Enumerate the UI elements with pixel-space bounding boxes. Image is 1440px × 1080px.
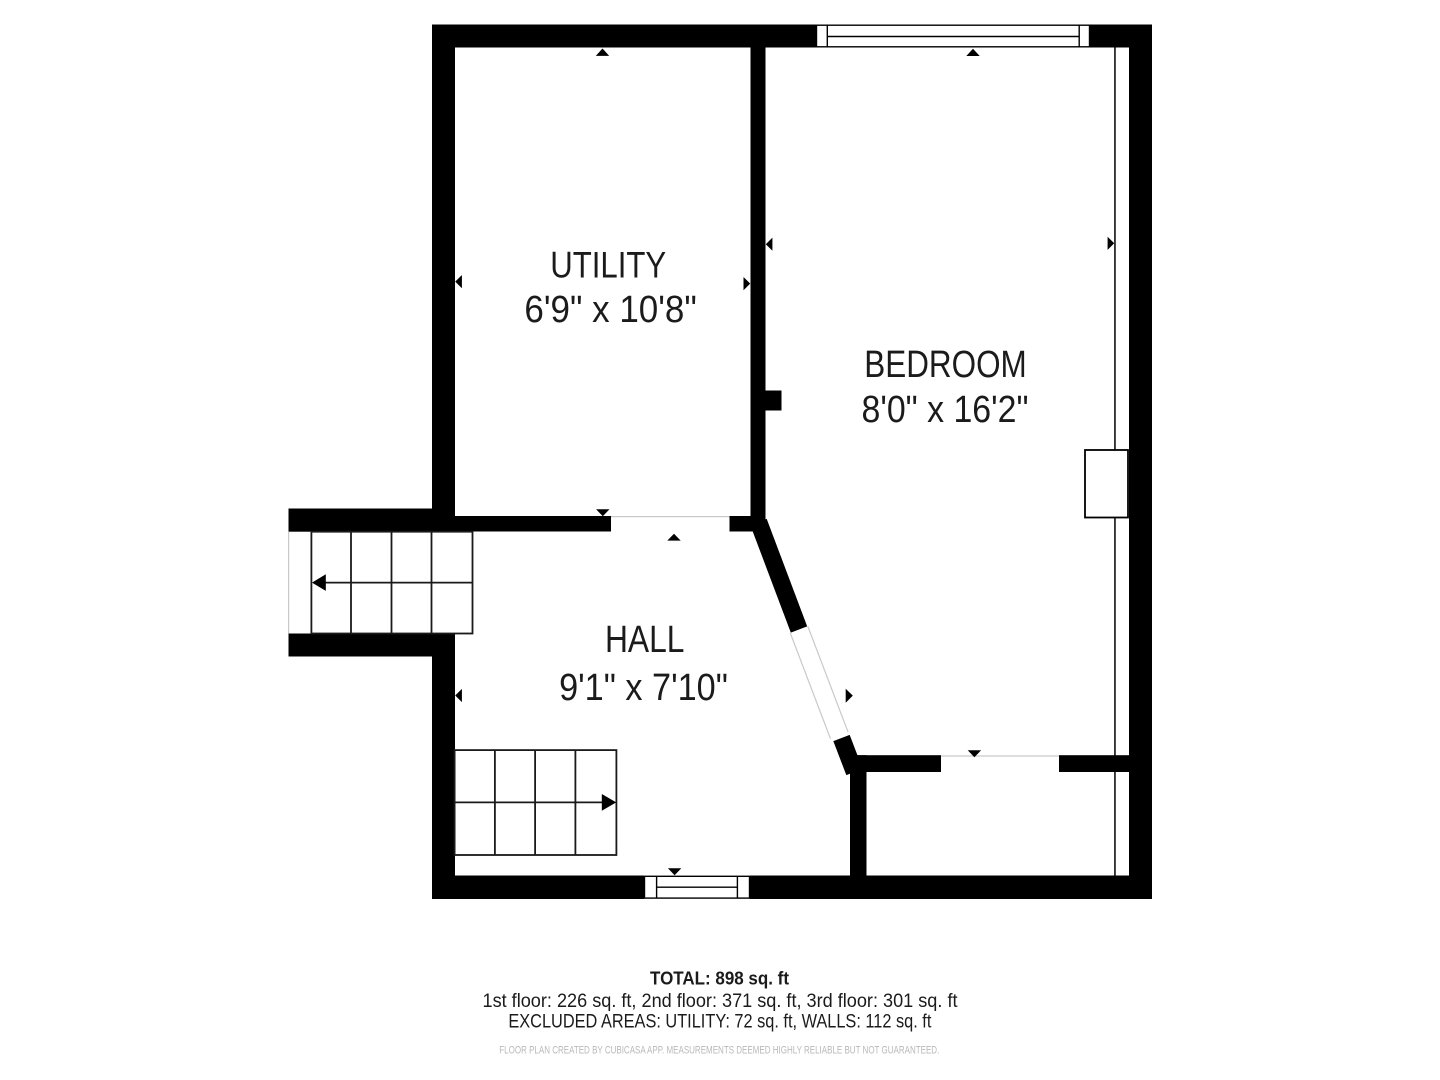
svg-text:6'9" x 10'8": 6'9" x 10'8"	[524, 289, 696, 331]
svg-text:TOTAL: 898 sq. ft: TOTAL: 898 sq. ft	[650, 969, 789, 989]
svg-text:EXCLUDED AREAS: UTILITY: 72 sq: EXCLUDED AREAS: UTILITY: 72 sq. ft, WALL…	[508, 1011, 932, 1032]
svg-text:8'0" x 16'2": 8'0" x 16'2"	[862, 389, 1029, 431]
svg-text:9'1" x 7'10": 9'1" x 7'10"	[559, 667, 728, 709]
svg-text:BEDROOM: BEDROOM	[864, 344, 1027, 386]
svg-text:HALL: HALL	[605, 619, 685, 661]
svg-text:1st floor: 226 sq. ft, 2nd flo: 1st floor: 226 sq. ft, 2nd floor: 371 sq…	[483, 991, 959, 1012]
svg-text:FLOOR PLAN CREATED BY CUBICASA: FLOOR PLAN CREATED BY CUBICASA APP. MEAS…	[499, 1044, 939, 1056]
svg-text:UTILITY: UTILITY	[550, 243, 666, 285]
